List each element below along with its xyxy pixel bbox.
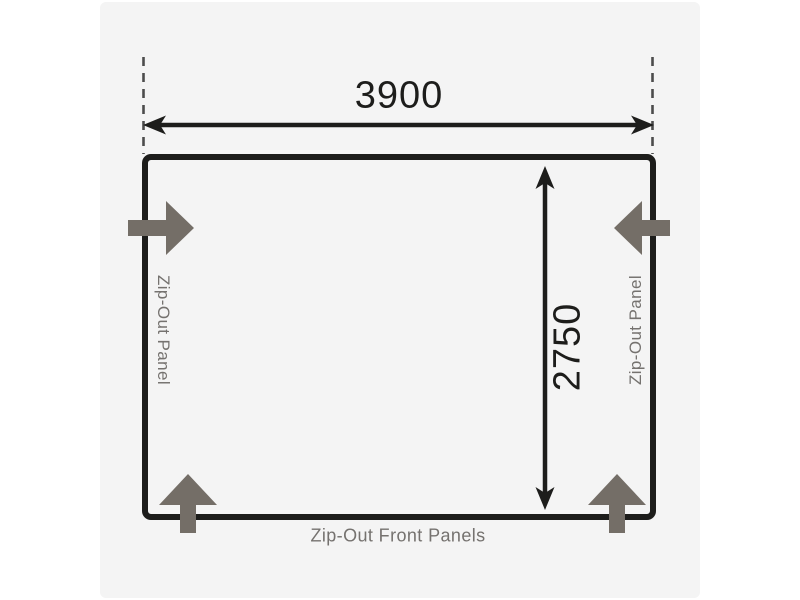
- zip-out-front-panels-label: Zip-Out Front Panels: [310, 526, 485, 547]
- zip-out-arrow-bottom-right-icon: [588, 474, 646, 533]
- awning-dimension-diagram: 3900 2750 Zip-Out Panel Zip-Out Panel Zi…: [0, 0, 800, 600]
- width-dimension-label: 3900: [355, 75, 444, 118]
- zip-out-arrow-left-icon: [128, 201, 194, 255]
- zip-out-panel-label-right: Zip-Out Panel: [626, 275, 646, 385]
- zip-out-arrow-bottom-left-icon: [159, 474, 217, 533]
- zip-out-panel-label-left: Zip-Out Panel: [153, 275, 173, 385]
- zip-out-arrow-right-icon: [614, 201, 670, 255]
- depth-dimension-label: 2750: [547, 303, 590, 392]
